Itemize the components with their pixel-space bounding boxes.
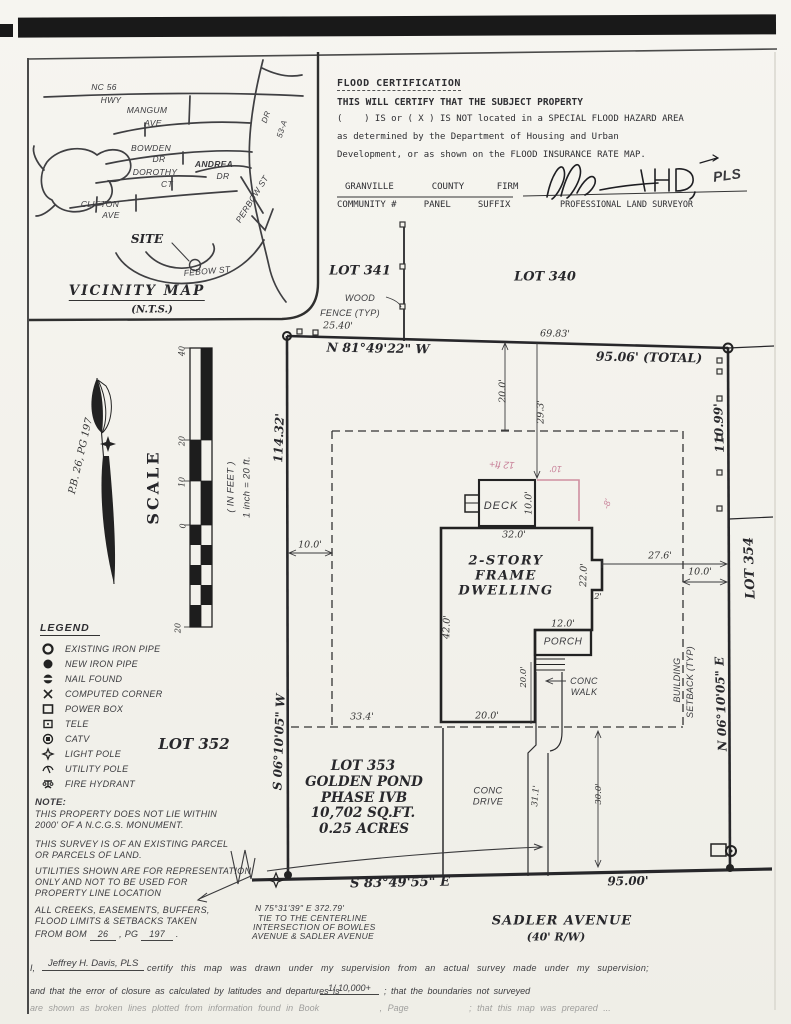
legend-item-label: LIGHT POLE [65,749,121,759]
legend-item: FIRE HYDRANT [40,776,163,791]
flood-cert-title: FLOOD CERTIFICATION [337,78,461,91]
wood-fence-label-2: FENCE (TYP) [320,308,380,318]
surveyor-title-label: PROFESSIONAL LAND SURVEYOR [560,200,693,210]
tie-line-4: AVENUE & SADLER AVENUE [252,931,374,941]
legend-item-label: EXISTING IRON PIPE [65,644,160,654]
cert-line-2a: and that the error of closure as calcula… [30,986,340,996]
scale-tick-0: 0 [179,523,188,528]
new-iron-pipe-marker [726,864,734,872]
scale-tick-10: 10 [178,477,187,487]
legend-item: NEW IRON PIPE [40,656,163,671]
dim-220: 22.0' [578,563,590,587]
dist-9500: 95.00' [607,874,648,889]
dim-311: 31.1' [530,785,542,807]
nail-found-icon [40,672,56,686]
flood-cert-line3: as determined by the Department of Housi… [337,132,619,142]
road-label-bowden: BOWDEN [131,143,171,153]
road-label-hwy: HWY [101,95,122,105]
dist-11099: 110.99' [711,403,727,453]
conc-drive-label-1: CONC [473,786,502,797]
tele-icon [40,717,56,731]
legend-item-label: TELE [65,719,89,729]
road-label-mangum: MANGUM [127,105,168,115]
road-label-mangum-ave: AVE [144,118,161,128]
note-4-line-3: FROM BOM 26 , PG 197 . [35,929,179,939]
dist-11432: 114.32' [271,413,287,463]
note-2-line-2: OR PARCELS OF LAND. [35,850,142,860]
note-3-line-1: UTILITIES SHOWN ARE FOR REPRESENTATION [35,866,251,876]
dwelling-label-1: 2-STORY [468,554,543,569]
road-label-dorothy-ct: CT [161,179,173,189]
dim-20-house: 20.0' [475,711,499,722]
bearing-south-line: S 83°49'55" E [350,875,450,892]
street-rw-label: (40' R/W) [527,931,585,944]
deck-label: DECK [484,500,519,512]
cert-line-3-faded: are shown as broken lines plotted from i… [30,1003,611,1013]
lot-341-label: LOT 341 [329,264,391,279]
catv-icon [40,732,56,746]
lot-352-label: LOT 352 [158,735,229,753]
red-note-10: 10' [550,464,562,474]
dim-20-top: 20.0' [498,379,509,403]
road-label-bowden-dr: DR [153,154,166,164]
red-note-12ft: 12 ft+ [489,458,515,470]
note-4-line-2: FLOOD LIMITS & SETBACKS TAKEN [35,916,197,926]
porch-label: PORCH [544,637,583,648]
light-pole-icon [40,747,56,761]
conc-walk-label-2: WALK [571,687,598,697]
legend-item: TELE [40,716,163,731]
cert-line-2b: ; that the boundaries not surveyed [384,986,530,996]
flood-cert-line2: ( ) IS or ( X ) IS NOT located in a SPEC… [337,114,684,124]
conc-walk-label-1: CONC [570,676,598,686]
road-label-dorothy: DOROTHY [133,167,178,177]
note-1-line-1: THIS PROPERTY DOES NOT LIE WITHIN [35,809,217,819]
dim-10-deck: 10.0' [524,491,535,515]
legend-item: NAIL FOUND [40,671,163,686]
legend-item-label: COMPUTED CORNER [65,689,163,699]
building-setback-label-2: SETBACK (TYP) [685,646,695,718]
legend-item: POWER BOX [40,701,163,716]
parcel-line-4: 10,702 SQ.FT. [311,805,416,821]
legend-item-label: UTILITY POLE [65,764,128,774]
scale-title: SCALE [144,449,163,524]
new-iron-pipe-icon [40,657,56,671]
legend-item: UTILITY POLE [40,761,163,776]
legend-item: EXISTING IRON PIPE [40,641,163,656]
road-label-andrea: ANDREA [195,159,233,169]
legend-item-label: NEW IRON PIPE [65,659,138,669]
road-label-clifton-ave: AVE [102,210,119,220]
existing-iron-pipe-icon [40,642,56,656]
legend-block: LEGEND EXISTING IRON PIPE NEW IRON PIPE … [40,618,163,791]
dist-2540: 25.40' [323,320,353,332]
scale-feet-label: ( IN FEET ) [226,461,237,512]
vicinity-map-title: VICINITY MAP [69,283,205,301]
bearing-north-line: N 81°49'22" W [326,340,429,357]
porch-steps [536,659,565,670]
legend-item-label: POWER BOX [65,704,123,714]
legend-item: COMPUTED CORNER [40,686,163,701]
dist-6983: 69.83' [540,328,570,340]
red-annotation-lines [537,480,579,521]
conc-drive-label-2: DRIVE [473,797,504,808]
surveyor-name: Jeffrey H. Davis, PLS [42,958,144,971]
power-box-marker [711,844,726,856]
legend-title: LEGEND [40,622,100,636]
bom-prefix: FROM BOM [35,929,87,939]
note-2-line-1: THIS SURVEY IS OF AN EXISTING PARCEL [35,839,228,849]
lot-340-label: LOT 340 [514,270,576,285]
fire-hydrant-icon [40,777,56,791]
legend-item-label: NAIL FOUND [65,674,122,684]
computed-corner-icon [40,687,56,701]
dwelling-label-2: FRAME [475,569,537,584]
wood-fence-label-1: WOOD [345,293,375,303]
note-heading: NOTE: [35,797,66,808]
power-box-icon [40,702,56,716]
road-label-nc56: NC 56 [91,82,117,92]
wood-fence-leader [386,297,401,307]
dim-334: 33.4' [350,712,374,723]
parcel-line-3: PHASE IVB [321,790,407,806]
vicinity-map-box [29,52,318,320]
utility-pole-icon [40,762,56,776]
new-iron-pipe-marker [284,871,292,879]
note-3-line-2: ONLY AND NOT TO BE USED FOR [35,877,188,887]
flood-cert-line4: Development, or as shown on the FLOOD IN… [337,150,646,160]
legend-item: CATV [40,731,163,746]
building-setback-label-1: BUILDING [672,658,682,703]
legend-item: LIGHT POLE [40,746,163,761]
vicinity-map-nts: (N.T.S.) [131,305,172,316]
scale-tick-20b: 20 [174,623,183,633]
closure-ratio: 1/ 10,000+ [320,983,379,995]
cert-line-1: certify this map was drawn under my supe… [147,963,649,973]
flood-cert-line1: THIS WILL CERTIFY THAT THE SUBJECT PROPE… [337,97,583,108]
note-4-line-1: ALL CREEKS, EASEMENTS, BUFFERS, [35,905,210,915]
parcel-line-1: LOT 353 [331,758,395,774]
tie-line-1: N 75°31'39" E 372.79' [255,903,344,913]
dim-300: 30.0' [594,783,604,804]
legend-item-label: CATV [65,734,90,744]
community-panel-row: COMMUNITY # PANEL SUFFIX [337,200,510,210]
pg-prefix: , PG [119,929,138,939]
note-4-period: . [176,929,179,939]
site-label: SITE [131,232,163,246]
scale-tick-20: 20 [178,436,187,446]
note-3-line-3: PROPERTY LINE LOCATION [35,888,161,898]
cert-pre: I, [30,963,35,973]
dim-276: 27.6' [648,551,672,562]
dim-120: 12.0' [551,619,575,630]
scale-tick-40: 40 [178,346,187,356]
walk-and-drive-lines [443,672,562,877]
dim-420: 42.0' [441,615,453,639]
scale-ratio-label: 1 inch = 20 ft. [242,456,253,518]
dim-2: 2' [594,592,602,602]
north-arrow [91,378,116,584]
parcel-line-5: 0.25 ACRES [319,821,409,837]
road-label-clifton: CLIFTON [81,199,119,209]
bom-number: 26 [90,929,117,941]
dim-320: 32.0' [502,530,526,541]
dim-10-left: 10.0' [298,540,322,551]
street-name-label: SADLER AVENUE [492,914,632,929]
dist-9506-total: 95.06' (TOTAL) [596,349,703,366]
dim-10-right: 10.0' [688,567,712,578]
scale-bar [184,348,212,627]
parcel-line-2: GOLDEN POND [305,774,423,790]
firm-header-row: GRANVILLE COUNTY FIRM [345,182,518,192]
legend-item-label: FIRE HYDRANT [65,779,135,789]
dwelling-label-3: DWELLING [458,584,553,599]
site-leader-line [172,243,189,261]
pg-number: 197 [141,929,173,941]
dim-20-walk: 20.0' [519,666,529,687]
note-1-line-2: 2000' OF A N.C.G.S. MONUMENT. [35,820,184,830]
dim-293: 29.3' [536,400,547,424]
road-label-andrea-dr: DR [217,171,230,181]
lot-354-label: LOT 354 [741,537,758,599]
survey-plat-sheet: NC 56 HWY MANGUM AVE BOWDEN DR ANDREA DR… [0,0,791,1024]
